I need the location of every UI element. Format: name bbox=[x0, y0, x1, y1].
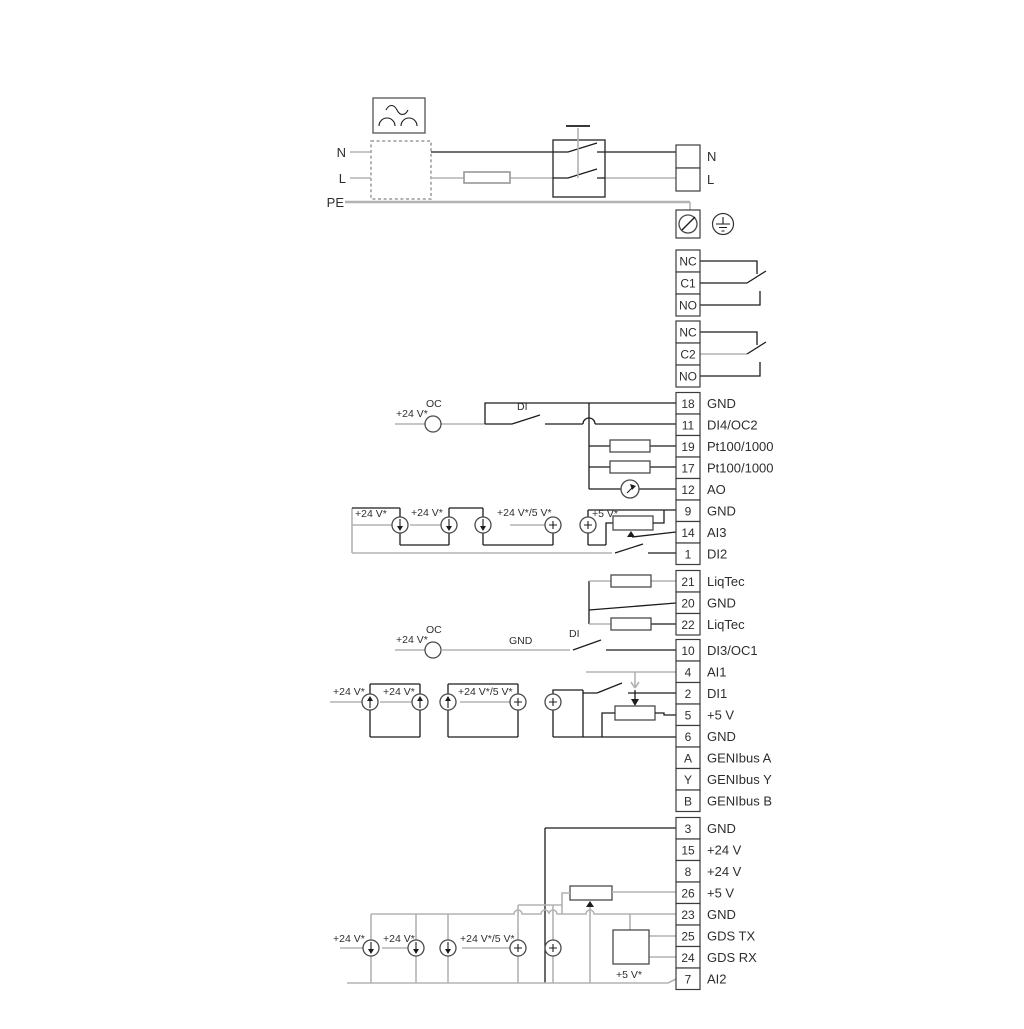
terminal-label: +24 V bbox=[707, 864, 742, 879]
current-source-icon bbox=[545, 940, 561, 956]
relay2-terminal-strip: NCC2NO bbox=[676, 321, 700, 387]
potentiometer bbox=[570, 886, 612, 900]
terminal-label: GENIbus B bbox=[707, 793, 772, 808]
resistor bbox=[611, 618, 651, 630]
terminal-label: Pt100/1000 bbox=[707, 439, 774, 454]
terminal-label: GND bbox=[707, 595, 736, 610]
terminal-label: AO bbox=[707, 482, 726, 497]
v5-label: +5 V* bbox=[616, 969, 642, 981]
v24-label: +24 V* bbox=[396, 408, 428, 420]
current-source-icon bbox=[510, 940, 526, 956]
relay1-terminal-strip: NCC1NO bbox=[676, 250, 700, 316]
resistor bbox=[610, 461, 650, 473]
current-source-icon bbox=[510, 694, 526, 710]
potentiometer bbox=[615, 706, 655, 720]
terminal-number: 10 bbox=[681, 644, 695, 658]
terminal-number: 17 bbox=[681, 461, 695, 475]
open-collector-icon bbox=[425, 416, 441, 432]
wire-segment bbox=[485, 403, 676, 424]
di-label: DI bbox=[569, 628, 580, 640]
wiper-arrow-icon bbox=[627, 531, 635, 537]
fuse bbox=[464, 172, 510, 183]
double-pole-switch bbox=[553, 126, 605, 197]
terminal-label: AI3 bbox=[707, 525, 727, 540]
terminal-label: DI2 bbox=[707, 546, 727, 561]
terminal-number: 4 bbox=[685, 665, 692, 679]
terminal-number: 6 bbox=[685, 730, 692, 744]
terminal-label: GENIbus Y bbox=[707, 772, 772, 787]
wire-segment bbox=[485, 415, 583, 424]
current-source-icon bbox=[545, 517, 561, 533]
gds-module bbox=[613, 930, 649, 964]
current-source-icon bbox=[362, 694, 378, 710]
terminal-number: NC bbox=[679, 326, 697, 340]
wire-segment bbox=[583, 683, 676, 693]
terminal-number: 5 bbox=[685, 708, 692, 722]
terminal-number: 26 bbox=[681, 886, 695, 900]
current-source-icon bbox=[440, 694, 456, 710]
v24-label: +24 V* bbox=[383, 686, 415, 698]
terminal-L bbox=[676, 168, 700, 191]
terminal-number: C2 bbox=[680, 348, 696, 362]
terminal-label: GND bbox=[707, 821, 736, 836]
potentiometer bbox=[613, 516, 653, 530]
wire-segment bbox=[586, 672, 676, 688]
v24v5-label: +24 V*/5 V* bbox=[497, 507, 552, 519]
pe-label: PE bbox=[327, 195, 345, 210]
terminal-number: 7 bbox=[685, 972, 692, 986]
terminal-label: +5 V bbox=[707, 885, 734, 900]
terminal-number: 3 bbox=[685, 822, 692, 836]
terminal-number: 11 bbox=[682, 418, 695, 432]
v24v5-label: +24 V*/5 V* bbox=[460, 933, 515, 945]
wire-segment bbox=[602, 713, 615, 737]
wiper-arrow-icon bbox=[631, 699, 639, 706]
terminal-label: LiqTec bbox=[707, 574, 745, 589]
terminal-number: 23 bbox=[681, 908, 695, 922]
gnd-label: GND bbox=[509, 635, 533, 647]
terminal-label: GDS TX bbox=[707, 928, 755, 943]
wire-segment bbox=[553, 169, 605, 178]
terminal-label: GDS RX bbox=[707, 950, 757, 965]
wire-segment bbox=[655, 713, 676, 715]
terminal-number: 21 bbox=[681, 575, 695, 589]
wire-segment bbox=[700, 332, 757, 345]
wire-segment bbox=[700, 291, 760, 305]
analog-output-meter-icon bbox=[621, 480, 639, 498]
current-source-icon bbox=[408, 940, 424, 956]
terminal-label: L bbox=[707, 172, 714, 187]
wiring-diagram: N L PE +24 V* OC DI bbox=[0, 0, 1024, 1024]
current-source-icon bbox=[363, 940, 379, 956]
wiring-diagram-canvas: N L PE +24 V* OC DI bbox=[0, 0, 1024, 1024]
terminal-label: AI2 bbox=[707, 971, 727, 986]
terminal-label: GENIbus A bbox=[707, 750, 772, 765]
terminal-number: 8 bbox=[685, 865, 692, 879]
terminal-label: DI3/OC1 bbox=[707, 643, 758, 658]
v24-label: +24 V* bbox=[396, 634, 428, 646]
terminal-number: 22 bbox=[681, 618, 695, 632]
current-source-icon bbox=[475, 517, 491, 533]
current-source-icon bbox=[545, 694, 561, 710]
earth-icon bbox=[713, 214, 734, 235]
v24-label: +24 V* bbox=[355, 508, 387, 520]
current-source-icon bbox=[392, 517, 408, 533]
wire-segment bbox=[700, 261, 757, 274]
terminal-number: 12 bbox=[681, 483, 695, 497]
terminal-N bbox=[676, 145, 700, 168]
v24v5-label: +24 V*/5 V* bbox=[458, 686, 513, 698]
wire-segment bbox=[653, 510, 664, 523]
pe-screw-terminal-icon bbox=[676, 210, 700, 238]
terminal-number: NO bbox=[679, 370, 697, 384]
io-terminal-strip-3: 3GND15+24 V8+24 V26+5 V23GND25GDS TX24GD… bbox=[676, 818, 757, 990]
wire-segment bbox=[615, 544, 676, 553]
wire-segment bbox=[700, 362, 760, 376]
wire-segment bbox=[373, 98, 425, 133]
terminal-number: C1 bbox=[680, 277, 696, 291]
terminal-number: NC bbox=[679, 255, 697, 269]
open-collector-icon bbox=[425, 642, 441, 658]
wire-segment bbox=[573, 640, 676, 650]
l-label: L bbox=[339, 171, 346, 186]
terminal-label: GND bbox=[707, 503, 736, 518]
power-terminal-strip: NL bbox=[676, 145, 716, 191]
terminal-label: GND bbox=[707, 907, 736, 922]
n-label: N bbox=[337, 145, 346, 160]
wire-segment bbox=[545, 828, 676, 983]
resistor bbox=[610, 440, 650, 452]
emc-filter-box bbox=[371, 141, 431, 199]
oc-label: OC bbox=[426, 398, 442, 410]
terminal-label: Pt100/1000 bbox=[707, 460, 774, 475]
terminal-number: 9 bbox=[685, 504, 692, 518]
terminal-label: +5 V bbox=[707, 707, 734, 722]
terminal-number: Y bbox=[684, 773, 692, 787]
terminal-number: 2 bbox=[685, 687, 692, 701]
terminal-label: GND bbox=[707, 729, 736, 744]
resistor bbox=[611, 575, 651, 587]
terminal-number: 24 bbox=[681, 951, 695, 965]
wire-segment bbox=[700, 271, 766, 283]
terminal-label: DI1 bbox=[707, 686, 727, 701]
terminal-label: +24 V bbox=[707, 842, 742, 857]
io-terminal-strip-2: 10DI3/OC14AI12DI15+5 V6GNDAGENIbus AYGEN… bbox=[676, 640, 772, 812]
v24-label: +24 V* bbox=[333, 686, 365, 698]
terminal-label: N bbox=[707, 149, 716, 164]
terminal-label: LiqTec bbox=[707, 617, 745, 632]
terminal-number: 15 bbox=[681, 843, 695, 857]
terminal-number: 19 bbox=[681, 440, 695, 454]
terminal-label: GND bbox=[707, 396, 736, 411]
terminal-number: B bbox=[684, 794, 692, 808]
v24-label: +24 V* bbox=[333, 933, 365, 945]
terminal-number: 20 bbox=[681, 596, 695, 610]
wire-segment bbox=[716, 217, 730, 231]
current-source-icon bbox=[440, 940, 456, 956]
terminal-label: AI1 bbox=[707, 664, 727, 679]
terminal-number: 1 bbox=[685, 547, 692, 561]
wire-segment bbox=[371, 910, 676, 914]
terminal-label: DI4/OC2 bbox=[707, 417, 758, 432]
terminal-number: 18 bbox=[681, 397, 695, 411]
oc-label: OC bbox=[426, 624, 442, 636]
terminal-number: 25 bbox=[681, 929, 695, 943]
current-source-icon bbox=[412, 694, 428, 710]
wiper-arrow-icon bbox=[586, 901, 594, 907]
ac-supply-icon bbox=[373, 98, 425, 133]
wire-segment bbox=[632, 532, 676, 537]
liqtec-terminal-strip: 21LiqTec20GND22LiqTec bbox=[676, 571, 745, 636]
wire-segment bbox=[589, 603, 676, 610]
current-source-icon bbox=[580, 517, 596, 533]
wire-segment bbox=[621, 480, 639, 498]
wire-segment bbox=[553, 143, 605, 152]
terminal-number: A bbox=[684, 751, 692, 765]
terminal-number: 14 bbox=[681, 526, 695, 540]
v24-label: +24 V* bbox=[411, 507, 443, 519]
terminal-number: NO bbox=[679, 299, 697, 313]
current-source-icon bbox=[441, 517, 457, 533]
io-terminal-strip-1: 18GND11DI4/OC219Pt100/100017Pt100/100012… bbox=[676, 393, 774, 565]
